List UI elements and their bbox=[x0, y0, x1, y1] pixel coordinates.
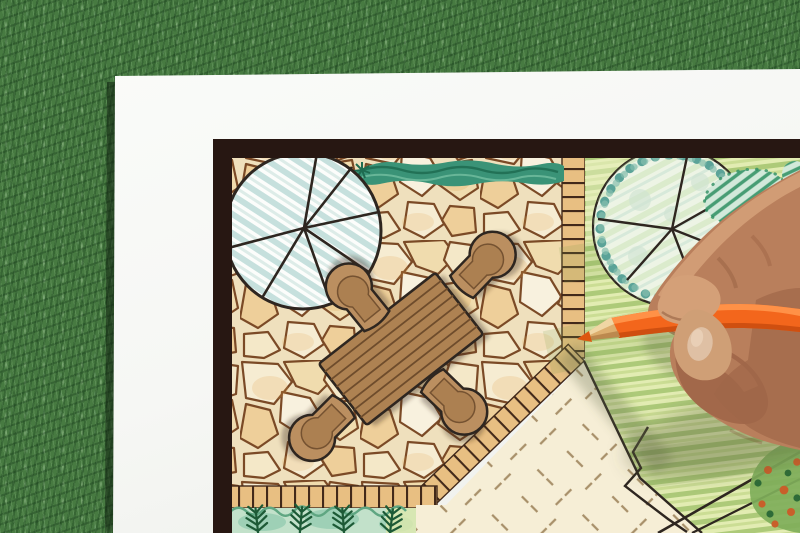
garden-plan-drawing bbox=[0, 0, 800, 533]
fern-planting-bed bbox=[230, 504, 416, 533]
photo-scene bbox=[0, 0, 800, 533]
tile-band-horizontal bbox=[230, 486, 437, 508]
